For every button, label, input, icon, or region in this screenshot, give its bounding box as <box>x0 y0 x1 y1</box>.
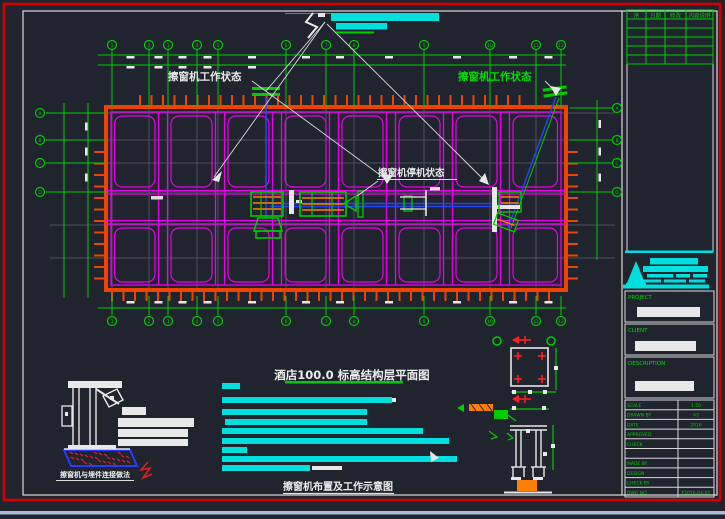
svg-text:4: 4 <box>196 319 199 325</box>
svg-text:序: 序 <box>634 12 640 20</box>
detail-text-bar <box>118 418 194 427</box>
rebar-marks <box>514 352 546 383</box>
red-hatch-dots <box>70 452 130 465</box>
base-block <box>517 480 537 491</box>
svg-text:CHECK: CHECK <box>627 442 644 448</box>
svg-text:2016: 2016 <box>690 422 702 428</box>
red-section-arrow-2 <box>512 395 531 403</box>
project-value-bar <box>637 307 700 317</box>
svg-text:9: 9 <box>423 43 426 49</box>
plan-title: 酒店100.0 标高结构层平面图 <box>274 368 429 382</box>
svg-text:11: 11 <box>533 319 539 325</box>
svg-text:DESIGN: DESIGN <box>627 471 644 477</box>
section-details <box>457 336 558 493</box>
detail-text-bar <box>118 429 188 437</box>
svg-text:9: 9 <box>423 319 426 325</box>
svg-text:内容说明: 内容说明 <box>688 12 711 20</box>
svg-text:2: 2 <box>148 319 151 325</box>
dimension-grid-bubbles: 112233445566778899101011111212ABCDABCD <box>36 41 622 326</box>
svg-text:5: 5 <box>217 43 220 49</box>
svg-text:1: 1 <box>111 319 114 325</box>
label-working-right: 擦窗机工作状态 <box>458 70 532 83</box>
svg-text:D: D <box>38 190 42 196</box>
top-reference-symbol <box>306 13 439 38</box>
svg-text:12: 12 <box>558 319 564 325</box>
svg-text:B: B <box>615 138 618 144</box>
titleblock-rows: SCALE1:50DRAWN BYA2DATE2016APPROVEDCHECK… <box>625 400 714 497</box>
channel-section <box>510 426 547 477</box>
svg-text:修改: 修改 <box>670 12 682 20</box>
client-value-bar <box>635 341 696 351</box>
svg-text:4: 4 <box>196 43 199 49</box>
svg-text:DRAWN BY: DRAWN BY <box>627 413 651 419</box>
plan-title-underline <box>285 381 403 384</box>
svg-text:8: 8 <box>353 319 356 325</box>
svg-text:11: 11 <box>533 43 539 49</box>
cad-drawing-sheet[interactable]: 112233445566778899101011111212ABCDABCD <box>0 0 725 519</box>
svg-text:8: 8 <box>353 43 356 49</box>
svg-text:B: B <box>38 138 41 144</box>
red-section-arrow-1 <box>512 336 531 344</box>
svg-text:3: 3 <box>167 43 170 49</box>
machine-base-detail: 擦窗机与埋件连接做法 <box>56 381 194 481</box>
detail-title: 擦窗机与埋件连接做法 <box>60 470 130 479</box>
svg-text:APPROVED: APPROVED <box>627 432 652 438</box>
red-signature-mark <box>141 462 152 478</box>
client-label: CLIENT <box>628 328 648 334</box>
green-leader-tag <box>494 410 508 419</box>
svg-text:日期: 日期 <box>650 13 662 20</box>
svg-text:C: C <box>615 161 618 167</box>
figure-title: 擦窗机布置及工作示意图 <box>283 480 393 493</box>
room-tag <box>151 196 163 200</box>
svg-text:10: 10 <box>487 319 493 325</box>
description-value-bar <box>635 381 694 391</box>
svg-text:A2: A2 <box>693 413 699 419</box>
svg-text:10: 10 <box>487 43 493 49</box>
svg-text:6: 6 <box>285 319 288 325</box>
svg-text:5: 5 <box>217 319 220 325</box>
room-tag <box>430 187 440 191</box>
embed-plate-hatch-area <box>64 450 137 466</box>
svg-text:12: 12 <box>558 43 564 49</box>
cad-canvas[interactable]: 112233445566778899101011111212ABCDABCD <box>0 0 725 519</box>
notes-text-bars <box>222 383 457 471</box>
svg-text:2: 2 <box>148 43 151 49</box>
svg-text:DATE: DATE <box>627 422 639 428</box>
top-tag-bar-1 <box>331 13 439 21</box>
svg-text:6: 6 <box>285 43 288 49</box>
sheet-frames <box>0 4 725 515</box>
title-block: 序日期修改内容说明 PROJECT CLIENT DESCRIPTION SCA… <box>623 10 714 497</box>
svg-text:1:50: 1:50 <box>691 403 701 409</box>
svg-text:1: 1 <box>111 43 114 49</box>
svg-text:7: 7 <box>325 319 328 325</box>
svg-text:MADE BY: MADE BY <box>627 461 648 467</box>
label-parked: 擦窗机停机状态 <box>378 167 445 179</box>
detail-text-bar <box>122 407 146 415</box>
revision-table: 序日期修改内容说明 <box>627 10 713 64</box>
svg-text:F2016-04-01: F2016-04-01 <box>682 490 711 496</box>
svg-text:3: 3 <box>167 319 170 325</box>
svg-text:7: 7 <box>325 43 328 49</box>
bottom-strip <box>0 511 725 515</box>
detail-text-bar <box>118 439 188 446</box>
description-label: DESCRIPTION <box>628 361 665 367</box>
svg-text:CHECK BY: CHECK BY <box>627 481 650 487</box>
svg-text:C: C <box>38 161 41 167</box>
svg-text:DWG NO: DWG NO <box>627 490 647 496</box>
top-tag-bar-2 <box>336 23 387 30</box>
label-working-left: 擦窗机工作状态 <box>168 70 242 83</box>
company-logo <box>626 258 708 286</box>
svg-text:D: D <box>615 190 619 196</box>
svg-text:SCALE: SCALE <box>627 403 642 409</box>
project-label: PROJECT <box>628 295 652 301</box>
